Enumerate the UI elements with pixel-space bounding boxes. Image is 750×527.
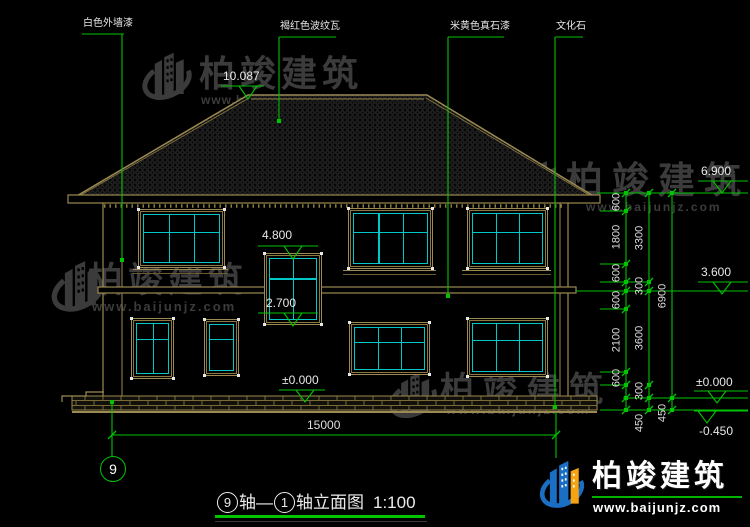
- window-mullion: [194, 215, 195, 262]
- window-mullion: [169, 215, 170, 262]
- window: [467, 318, 548, 377]
- window-transom: [270, 278, 316, 279]
- window-mullion: [153, 324, 154, 373]
- footer-logo-icon: [536, 451, 588, 517]
- cad-elevation-drawing: 柏竣建筑www.baijunjz.com柏竣建筑www.baijunjz.com…: [0, 0, 750, 527]
- window-mullion: [519, 324, 520, 371]
- window-transom: [473, 340, 542, 341]
- window-transom: [473, 232, 542, 233]
- title-suffix: 轴立面图: [296, 494, 364, 511]
- window-mullion: [378, 214, 379, 263]
- window: [204, 319, 239, 376]
- title-underline-2: [215, 521, 427, 522]
- footer-logo-divider: [592, 496, 742, 498]
- window-mullion: [293, 259, 294, 319]
- window-sill: [343, 270, 436, 275]
- window-glazing: [472, 213, 543, 264]
- window-mullion: [378, 328, 379, 369]
- window: [264, 253, 322, 325]
- window-glazing: [209, 324, 234, 371]
- title-axis-end: 1: [274, 492, 295, 513]
- footer-logo-url: www.baijunjz.com: [593, 501, 721, 514]
- title-mid: 轴—: [239, 494, 273, 511]
- windows-layer: [0, 0, 750, 527]
- window-mullion: [403, 214, 404, 263]
- window-glazing: [269, 258, 317, 320]
- window-mullion: [496, 324, 497, 371]
- window-mullion: [519, 214, 520, 263]
- window: [131, 318, 174, 379]
- window-transom: [354, 232, 427, 233]
- window-glazing: [354, 327, 425, 370]
- window-sill: [133, 269, 228, 274]
- window-transom: [137, 339, 168, 340]
- window: [348, 208, 433, 269]
- window-glazing: [143, 214, 220, 263]
- window-transom: [210, 339, 233, 340]
- window: [467, 208, 548, 269]
- axis-bubble-9: 9: [100, 456, 126, 482]
- title-axis-start: 9: [217, 492, 238, 513]
- window-transom: [144, 232, 219, 233]
- title-scale: 1:100: [373, 494, 416, 511]
- window-mullion: [496, 214, 497, 263]
- footer-logo-name: 柏竣建筑: [592, 462, 728, 492]
- drawing-title: 9 轴— 1 轴立面图 1:100: [217, 492, 416, 513]
- window-glazing: [472, 323, 543, 372]
- window-glazing: [353, 213, 428, 264]
- window-sill: [462, 270, 551, 275]
- title-underline: [215, 515, 425, 518]
- window: [138, 209, 225, 268]
- window: [349, 322, 430, 375]
- axis-bubble-label: 9: [109, 461, 117, 477]
- window-glazing: [136, 323, 169, 374]
- footer-logo: 柏竣建筑 www.baijunjz.com: [536, 451, 746, 521]
- window-transom: [355, 342, 424, 343]
- window-mullion: [401, 328, 402, 369]
